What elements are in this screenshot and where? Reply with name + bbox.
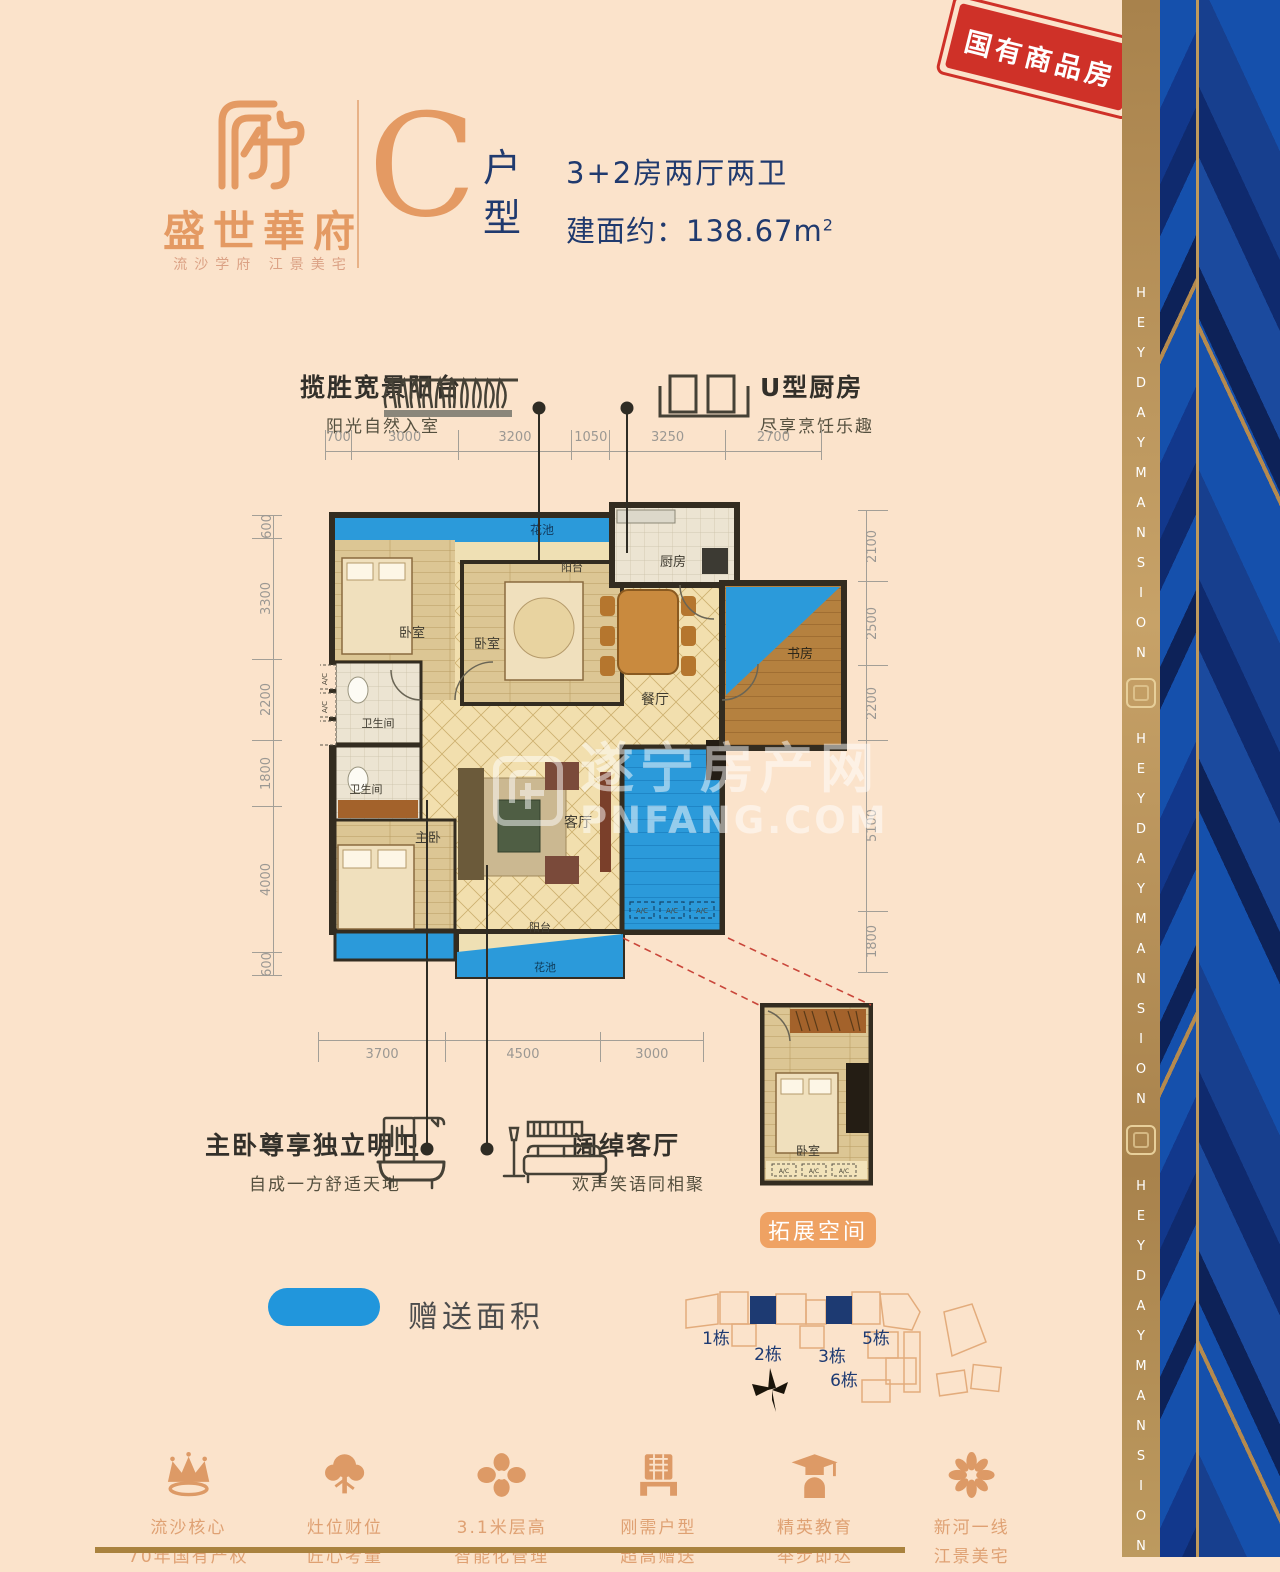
watermark: 遂宁房产网 PNFANG.COM	[492, 742, 889, 839]
room-label-balcony-bottom: 阳台	[529, 920, 551, 934]
tree-icon	[317, 1452, 372, 1498]
header-divider	[357, 100, 359, 268]
banner-text-run-2: HEYDAYMANSION	[1122, 733, 1160, 1106]
watermark-title: 遂宁房产网	[580, 742, 889, 796]
room-label-dining: 餐厅	[641, 692, 669, 708]
svg-text:A/C: A/C	[809, 1168, 819, 1175]
banner-blue-stripes-wide	[1199, 0, 1280, 1557]
feature-stove-line1: 灶位财位	[267, 1514, 424, 1543]
gift-area-swatch	[268, 1288, 380, 1326]
bottom-gold-bar	[95, 1547, 905, 1553]
compass-icon	[752, 1368, 788, 1412]
callout-kitchen: U型厨房 尽享烹饪乐趣	[760, 368, 874, 437]
gift-area-label: 赠送面积	[408, 1292, 544, 1336]
banner-text-run-1: HEYDAYMANSION	[1122, 287, 1160, 660]
extension-plan: A/C A/C A/C 卧室	[760, 1003, 873, 1200]
feature-education: 精英教育 举步即达	[737, 1452, 894, 1572]
room-label-balcony-top: 阳台	[561, 560, 583, 574]
building-label-1: 1栋	[702, 1329, 730, 1349]
site-plan-highlighted-units	[750, 1296, 852, 1324]
callout-kitchen-title: U型厨房	[760, 368, 874, 404]
brand-name: 盛世華府	[148, 198, 378, 259]
banner-gold-strip: HEYDAYMANSION HEYDAYMANSION HEYDAYMANSIO…	[1122, 0, 1160, 1557]
feature-core: 流沙核心 70年国有产权	[110, 1452, 267, 1572]
building-label-3: 3栋	[818, 1347, 846, 1367]
banner-blue-stripes-narrow	[1160, 0, 1196, 1557]
feature-river-line2: 江景美宅	[893, 1543, 1050, 1572]
petal-flower-icon	[944, 1452, 999, 1498]
dim-chain-top: 70030003200105032502700	[325, 430, 822, 460]
unit-suffix-top: 户	[483, 148, 521, 190]
unit-type-letter: C	[368, 96, 477, 238]
banner-emblem-icon-2	[1126, 1125, 1156, 1155]
awning-icon	[378, 372, 526, 422]
extension-space-label: 拓展空间	[760, 1212, 876, 1248]
feature-gift-line1: 刚需户型	[580, 1514, 737, 1543]
room-label-bath2: 卫生间	[350, 782, 383, 796]
room-label-ext-bedroom: 卧室	[796, 1143, 820, 1158]
room-label-bedroom2: 卧室	[474, 636, 500, 652]
site-plan: 1栋 2栋 3栋 5栋 6栋	[672, 1272, 1012, 1430]
watermark-logo-icon	[492, 755, 564, 827]
svg-text:A/C: A/C	[696, 907, 708, 915]
feature-stove: 灶位财位 匠心考量	[267, 1452, 424, 1572]
room-label-flower-top: 花池	[530, 522, 554, 537]
banner-emblem-icon	[1126, 678, 1156, 708]
room-label-kitchen: 厨房	[660, 554, 686, 570]
bathtub-icon	[374, 1116, 452, 1194]
building-label-5: 5栋	[862, 1329, 890, 1349]
room-label-bath1: 卫生间	[362, 716, 395, 730]
unit-description: 3+2房两厅两卫 建面约：138.67m2	[566, 150, 834, 250]
building-label-6: 6栋	[830, 1371, 858, 1391]
svg-text:A/C: A/C	[636, 907, 648, 915]
brand-logo-icon	[202, 92, 310, 192]
crown-icon	[161, 1452, 216, 1498]
building-icon	[631, 1452, 686, 1498]
brand-tagline: 流沙学府 江景美宅	[148, 254, 378, 274]
state-commodity-stamp: 国有商品房	[935, 0, 1147, 121]
feature-river: 新河一线 江景美宅	[893, 1452, 1050, 1572]
banner-text-run-3: HEYDAYMANSION	[1122, 1180, 1160, 1553]
svg-text:A/C: A/C	[839, 1168, 849, 1175]
watermark-url: PNFANG.COM	[580, 802, 889, 839]
flower-icon	[474, 1452, 529, 1498]
room-label-flower-bottom: 花池	[534, 961, 556, 974]
feature-river-line1: 新河一线	[893, 1514, 1050, 1543]
kitchen-cabinet-icon	[656, 372, 752, 424]
room-label-master: 主卧	[415, 831, 441, 846]
sofa-lamp-icon	[498, 1118, 616, 1192]
stamp-text: 国有商品房	[945, 3, 1138, 111]
unit-area-line: 建面约：138.67m2	[566, 208, 834, 250]
feature-gift: 刚需户型 超高赠送	[580, 1452, 737, 1572]
dim-chain-bottom: 370045003000	[318, 1032, 704, 1062]
graduate-icon	[787, 1452, 842, 1498]
dim-chain-left: 6003300220018004000600	[252, 515, 282, 976]
feature-core-line1: 流沙核心	[110, 1514, 267, 1543]
svg-text:A/C: A/C	[321, 701, 329, 713]
svg-text:A/C: A/C	[666, 907, 678, 915]
room-label-bedroom1: 卧室	[399, 625, 425, 641]
unit-type-suffix: 户 型	[483, 148, 521, 240]
svg-text:A/C: A/C	[321, 673, 329, 685]
unit-rooms-line: 3+2房两厅两卫	[566, 150, 834, 192]
feature-row: 流沙核心 70年国有产权 灶位财位 匠心考量 3.1米层高 智能化管理 刚需户型…	[110, 1452, 1050, 1572]
feature-height: 3.1米层高 智能化管理	[423, 1452, 580, 1572]
feature-height-line1: 3.1米层高	[423, 1514, 580, 1543]
unit-suffix-bottom: 型	[483, 198, 521, 240]
building-label-2: 2栋	[754, 1345, 782, 1365]
feature-education-line1: 精英教育	[737, 1514, 894, 1543]
room-label-study: 书房	[787, 646, 813, 662]
svg-text:A/C: A/C	[779, 1168, 789, 1175]
